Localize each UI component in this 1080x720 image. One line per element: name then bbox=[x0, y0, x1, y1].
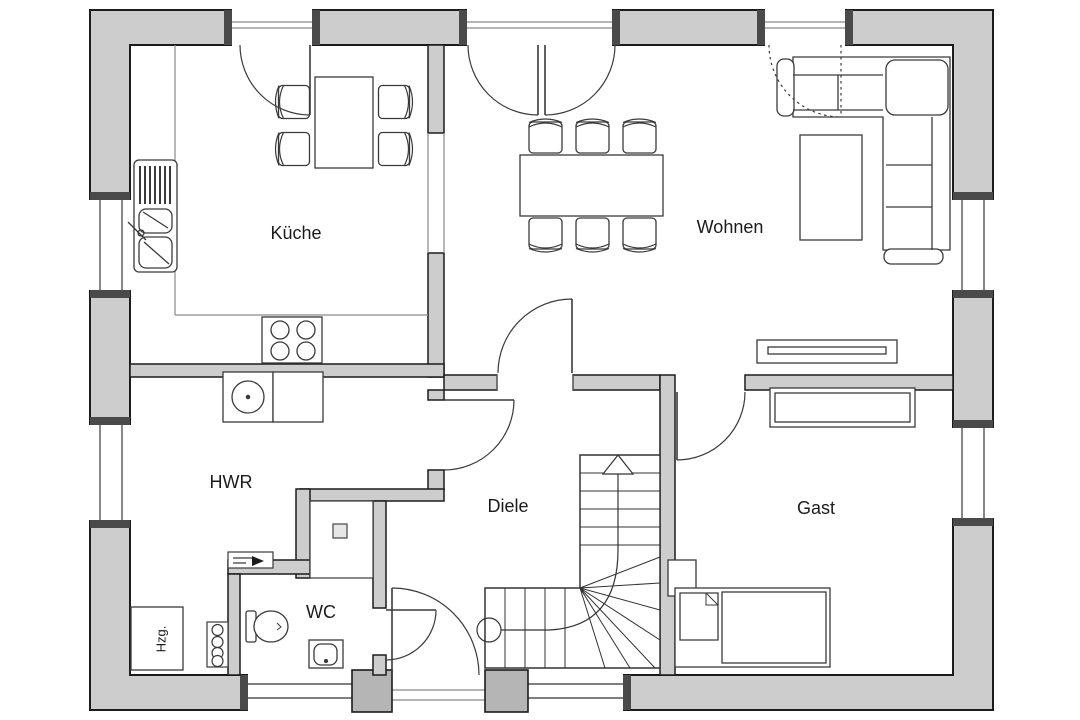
dining-chair bbox=[576, 218, 609, 252]
hwr-door bbox=[444, 400, 514, 470]
duct-symbol bbox=[228, 552, 273, 568]
kitchen-door-opening bbox=[224, 8, 320, 47]
shaft-symbol bbox=[333, 524, 347, 538]
wall-kitchen-living-bottom bbox=[428, 253, 444, 377]
entrance-door bbox=[392, 588, 479, 675]
kitchen-sink bbox=[128, 160, 177, 272]
wardrobe bbox=[770, 388, 915, 427]
living-window bbox=[951, 192, 995, 298]
wall-wc-east-bottom bbox=[373, 655, 386, 675]
label-hwr: HWR bbox=[210, 472, 253, 492]
guest-window bbox=[951, 420, 995, 526]
wall-kitchen-living-top bbox=[428, 45, 444, 133]
dining-chair bbox=[529, 119, 562, 153]
guest-room bbox=[668, 388, 915, 667]
wall-wc-east-top bbox=[373, 501, 386, 608]
hwr-window bbox=[88, 417, 132, 528]
dining-chair bbox=[623, 218, 656, 252]
wall-hall-hwr-bottom bbox=[428, 470, 444, 490]
living-double-door-opening bbox=[459, 8, 620, 47]
installation-shaft bbox=[310, 501, 373, 578]
wc-window bbox=[240, 673, 355, 712]
kitchen-living-passage bbox=[428, 133, 444, 253]
coffee-table bbox=[800, 135, 862, 240]
terrace-door-opening bbox=[757, 8, 853, 47]
floor-plan-page: Hzg. bbox=[0, 0, 1080, 720]
heater-label: Hzg. bbox=[153, 626, 168, 653]
toilet bbox=[246, 611, 288, 642]
washing-machine bbox=[223, 372, 323, 422]
tv-board bbox=[757, 340, 897, 363]
kitchen-chair bbox=[276, 133, 310, 166]
heater-box: Hzg. bbox=[131, 607, 183, 670]
entrance-door-opening bbox=[392, 673, 487, 712]
wall-wc-west bbox=[228, 574, 240, 675]
living-hall-door bbox=[498, 299, 572, 373]
floor-plan-drawing: Hzg. bbox=[0, 0, 1080, 720]
staircase bbox=[477, 455, 660, 668]
kitchen-table bbox=[315, 77, 373, 168]
wc-door bbox=[386, 610, 436, 660]
guest-door bbox=[677, 392, 745, 460]
wall-hall-hwr-top bbox=[428, 390, 444, 400]
living-hall-door-jambs bbox=[497, 375, 573, 390]
kitchen-window bbox=[88, 192, 132, 298]
label-diele: Diele bbox=[487, 496, 528, 516]
wall-living-hall-b bbox=[573, 375, 660, 390]
label-wohnen: Wohnen bbox=[697, 217, 764, 237]
bed bbox=[675, 588, 830, 667]
wall-living-hall-a bbox=[444, 375, 497, 390]
dryer bbox=[273, 372, 323, 422]
heating-manifold bbox=[207, 622, 228, 667]
label-gast: Gast bbox=[797, 498, 835, 518]
wc-sink bbox=[309, 640, 343, 668]
wall-hwr-shaft bbox=[300, 489, 444, 501]
label-kueche: Küche bbox=[270, 223, 321, 243]
dining-table bbox=[520, 155, 663, 216]
dining-chair bbox=[576, 119, 609, 153]
wall-hall-guest bbox=[660, 375, 675, 675]
dining-chair bbox=[623, 119, 656, 153]
kitchen-chair bbox=[379, 133, 413, 166]
stove bbox=[262, 317, 322, 363]
living-double-door bbox=[468, 45, 615, 115]
kitchen bbox=[128, 45, 428, 363]
dining-chair bbox=[529, 218, 562, 252]
hallway-window bbox=[528, 673, 631, 712]
label-wc: WC bbox=[306, 602, 336, 622]
kitchen-chair bbox=[379, 86, 413, 119]
hwr-room: Hzg. bbox=[131, 372, 323, 670]
